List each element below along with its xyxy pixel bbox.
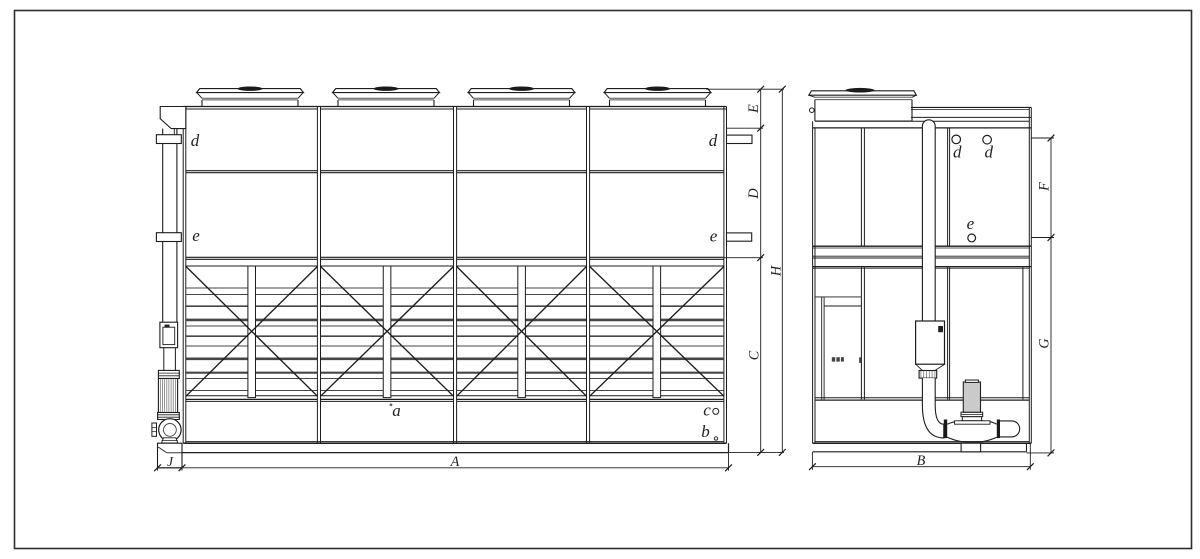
- svg-text:G: G: [1037, 338, 1053, 348]
- svg-text:e: e: [967, 214, 975, 233]
- svg-text:D: D: [746, 188, 762, 200]
- svg-text:d: d: [984, 143, 993, 162]
- svg-text:H: H: [768, 265, 784, 277]
- svg-text:C: C: [746, 350, 762, 360]
- svg-text:E: E: [746, 104, 762, 114]
- svg-text:A: A: [450, 454, 460, 470]
- svg-text:c: c: [703, 401, 711, 420]
- svg-text:b: b: [701, 422, 710, 441]
- svg-text:d: d: [191, 131, 200, 150]
- svg-text:B: B: [917, 453, 926, 469]
- svg-text:e: e: [710, 227, 718, 246]
- svg-text:e: e: [192, 226, 200, 245]
- svg-text:d: d: [953, 143, 962, 162]
- svg-text:d: d: [709, 131, 718, 150]
- svg-text:F: F: [1036, 182, 1052, 192]
- svg-text:a: a: [392, 401, 401, 420]
